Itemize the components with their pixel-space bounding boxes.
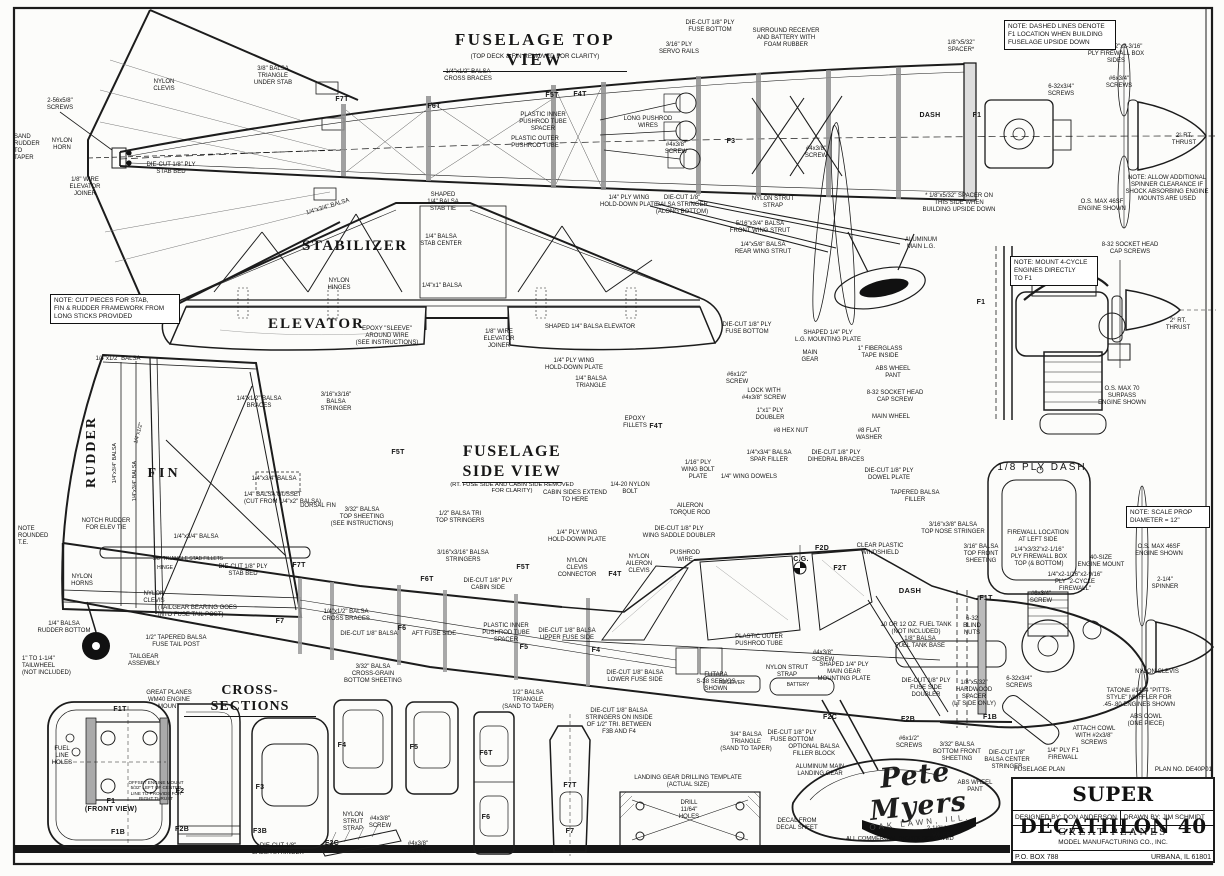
callout-label: #6x3/4" SCREWS <box>1098 76 1140 90</box>
callout-label: DIE-CUT 1/8" PLY FUSE BOTTOM <box>676 20 744 34</box>
callout-label: ALUMINUM MAIN LANDING GEAR <box>786 764 854 778</box>
callout-label: F5T <box>512 564 534 572</box>
callout-label: SURROUND RECEIVER AND BATTERY WITH FOAM … <box>744 28 828 49</box>
callout-label: F1B <box>106 829 130 837</box>
callout-label: F2C <box>320 840 344 848</box>
callout-label: 1/4"x3/4" BALSA <box>294 194 361 221</box>
callout-label: 1/4"x1/2" BALSA BRACES <box>224 396 294 410</box>
callout-label: F1 <box>968 112 986 120</box>
callout-label: OFFSET ENGINE MOUNT 5/32" LEFT OF CENTER… <box>118 780 194 802</box>
po-box-label: P.O. BOX 788 <box>1015 851 1058 864</box>
callout-label: PLASTIC INNER PUSHROD TUBE SPACER <box>514 112 572 133</box>
callout-label: NYLON CLEVIS <box>136 591 172 605</box>
callout-label: F1B <box>978 714 1002 722</box>
callout-label: 1/4"x3/32"x2-1/16" PLY FIREWALL BOX TOP … <box>998 547 1080 568</box>
callout-label: 5/16"x3/4" BALSA FRONT WING STRUT <box>722 221 798 235</box>
callout-label: F4 <box>586 647 606 655</box>
city-label: URBANA, IL 61801 <box>1151 851 1211 864</box>
callout-label: F2B <box>896 716 920 724</box>
callout-label: F2T <box>828 565 852 573</box>
title-block-credits: DESIGNED BY: DON ANDERSON DRAWN BY: JIM … <box>1012 810 1214 825</box>
callout-label: O.S. MAX 46SF ENGINE SHOWN <box>1070 199 1134 213</box>
callout-label: AILERON TORQUE ROD <box>662 503 718 517</box>
callout-label: SHAPED 1/4" PLY L.G. MOUNTING PLATE <box>784 330 872 344</box>
callout-label: #4x3/8" SCREW <box>398 841 438 855</box>
callout-label: 2° RT. THRUST <box>1160 318 1196 332</box>
callout-label: 1"x1" PLY DOUBLER <box>746 408 794 422</box>
callout-label: F4T <box>644 423 668 431</box>
callout-label: LONG PUSHROD WIRES <box>618 116 678 130</box>
callout-label: 1/4" BALSA TRIANGLE <box>566 376 616 390</box>
callout-label: F7 <box>270 618 290 626</box>
callout-label: 6-32 BLIND NUTS <box>956 616 988 637</box>
callout-label: TATONE #1434 "PITTS- STYLE" MUFFLER FOR … <box>1092 688 1186 709</box>
callout-label: 1/8"x5/32" SPACER* <box>936 40 986 54</box>
callout-label: DIE-CUT 1/8" BALSA LOWER FUSE SIDE <box>594 670 676 684</box>
callout-label: NOTE: CUT PIECES FOR STAB, FIN & RUDDER … <box>50 294 180 324</box>
callout-label: 1/4"x3/4" BALSA <box>240 476 308 483</box>
callout-label: F5T <box>386 449 410 457</box>
callout-label: F2C <box>818 714 842 722</box>
callout-label: 3/16"x3/16" BALSA STRINGER <box>308 392 364 413</box>
callout-label: 5/8" TRIANGLE STAB FILLETS <box>138 557 238 563</box>
callout-label: DIE-CUT 1/8" PLY STAB BED <box>208 564 278 578</box>
callout-label: FUEL LINE HOLES <box>44 746 80 767</box>
callout-label: 8-32 SOCKET HEAD CAP SCREWS <box>1092 242 1168 256</box>
callout-label: #8 HEX NUT <box>764 428 818 435</box>
callout-label: BATTERY <box>776 683 820 689</box>
callout-label: 1/4" PLY F1 FIREWALL <box>1036 748 1090 762</box>
callout-label: TAPERED BALSA FILLER <box>882 490 948 504</box>
callout-label: F5T <box>541 92 563 100</box>
callout-label: O.S. MAX 70 SURPASS ENGINE SHOWN <box>1092 386 1152 407</box>
callout-label: OPTIONAL BALSA FILLER BLOCK <box>780 744 848 758</box>
callout-label: F1T <box>974 595 998 603</box>
callout-label: DIE-CUT 1/8" BALSA <box>326 631 412 638</box>
callout-label: NYLON AILERON CLEVIS <box>618 554 660 575</box>
callout-label: NYLON HINGES <box>320 278 358 292</box>
callout-label: HINGE <box>150 566 180 572</box>
callout-label: 6-32x3/4" SCREWS <box>1038 84 1084 98</box>
callout-label: ABS WHEEL PANT <box>866 366 920 380</box>
callout-label: 1/4" PLY WING HOLD-DOWN PLATE <box>538 358 610 372</box>
callout-label: F4 <box>332 742 352 750</box>
callout-label: DIE-CUT 1/8" BALSA UPPER FUSE SIDE <box>526 628 608 642</box>
designed-by-label: DESIGNED BY: DON ANDERSON <box>1012 811 1120 825</box>
callout-label: DIE-CUT 1/8" PLY CABIN SIDE <box>452 578 524 592</box>
callout-label: F3 <box>250 784 270 792</box>
callout-label: 3/32" BALSA TOP SHEETING (SEE INSTRUCTIO… <box>328 507 396 528</box>
callout-label: 1/4"x3/4" BALSA SPAR FILLER <box>734 450 804 464</box>
callout-label: DIE-CUT 1/8" PLY STAB BED <box>138 162 204 176</box>
callout-label: 3/8" BALSA TRIANGLE UNDER STAB <box>246 66 300 87</box>
callout-label: 1/2" TAPERED BALSA FUSE TAIL POST <box>134 635 218 649</box>
callout-label: NYLON HORNS <box>64 574 100 588</box>
callout-label: 3/16"x3/8" BALSA TOP NOSE STRINGER <box>914 522 992 536</box>
callout-label: NYLON CLEVIS <box>146 79 182 93</box>
callout-label: NOTE: DASHED LINES DENOTE F1 LOCATION WH… <box>1004 20 1116 50</box>
callout-label: 1/8"x5/32" HARDWOOD SPACER (LT SIDE ONLY… <box>944 680 1004 708</box>
callout-label: LANDING GEAR DRILLING TEMPLATE (ACTUAL S… <box>618 775 758 789</box>
callout-label: 1/4" PLY WING HOLD-DOWN PLATE <box>540 530 614 544</box>
callout-label: MAIN WHEEL <box>862 414 920 421</box>
callout-label: F2B <box>170 826 194 834</box>
plan-sheet: FUSELAGE TOP VIEW (TOP DECK & FIN REMOVE… <box>0 0 1224 876</box>
callout-label: F7T <box>558 782 582 790</box>
callout-layer: 2-56x5/8" SCREWSSAND RUDDER TO TAPERNYLO… <box>0 0 1224 876</box>
callout-label: DIE-CUT 1/8" PLY FUSE BOTTOM <box>710 322 784 336</box>
callout-label: 8-32 SOCKET HEAD CAP SCREW <box>856 390 934 404</box>
callout-label: NYLON HORN <box>46 138 78 152</box>
callout-label: F5 <box>404 744 424 752</box>
callout-label: 1" TO 1-1/4" TAILWHEEL (NOT INCLUDED) <box>22 656 80 677</box>
callout-label: 1/8" BALSA FUEL TANK BASE <box>886 636 954 650</box>
callout-label: LOCK WITH #4x3/8" SCREW <box>732 388 796 402</box>
callout-label: DRILL 11/64" HOLES <box>668 800 710 821</box>
callout-label: NOTE ROUNDED T.E. <box>18 526 56 547</box>
callout-label: 1/4" BALSA RUDDER BOTTOM <box>30 621 98 635</box>
callout-label: NOTE: MOUNT 4-CYCLE ENGINES DIRECTLY TO … <box>1010 256 1098 286</box>
callout-label: DIE-CUT 1/8" BALSA STRINGERS ON INSIDE O… <box>576 708 662 736</box>
callout-label: F7T <box>331 96 353 104</box>
callout-label: F7 <box>560 828 580 836</box>
callout-label: #6x1/2" SCREWS <box>888 736 930 750</box>
callout-label: F1T <box>108 706 132 714</box>
callout-label: 1/8 PLY DASH <box>994 462 1090 474</box>
callout-label: #6x1/2" SCREW <box>716 372 758 386</box>
callout-label: RECEIVER <box>708 681 756 687</box>
callout-label: 1/4"x1/2" BALSA CROSS BRACES <box>436 69 500 83</box>
callout-label: 1/8" WIRE ELEVATOR JOINER <box>62 177 108 198</box>
callout-label: F6T <box>423 103 445 111</box>
callout-label: NOTCH RUDDER FOR ELEV TIE <box>76 518 136 532</box>
callout-label: F6T <box>416 576 438 584</box>
callout-label: DIE-CUT 1/8" BALSA STRINGER <box>244 843 312 857</box>
callout-label: ALUMINUM MAIN L.G. <box>896 237 946 251</box>
callout-label: DIE-CUT 1/8" BALSA STRINGER (ALONG BOTTO… <box>648 195 716 216</box>
title-block: SUPER DECATHLON 40 DESIGNED BY: DON ANDE… <box>1012 778 1214 862</box>
callout-label: F6 <box>476 814 496 822</box>
callout-label: DIE-CUT 1/8" PLY DOWEL PLATE <box>852 468 926 482</box>
callout-label: * 1/8"x5/32" SPACER ON THIS SIDE WHEN BU… <box>914 193 1004 214</box>
callout-label: 1/4"x3/4" BALSA <box>160 534 232 541</box>
callout-label: 10 OR 12 OZ. FUEL TANK (NOT INCLUDED) <box>866 622 966 636</box>
callout-label: CABIN SIDES EXTEND TO HERE <box>534 490 616 504</box>
callout-label: F6T <box>474 750 498 758</box>
title-block-address: P.O. BOX 788 URBANA, IL 61801 <box>1012 850 1214 864</box>
callout-label: SHAPED 1/4" BALSA ELEVATOR <box>528 324 652 331</box>
callout-label: #8 FLAT WASHER <box>848 428 890 442</box>
callout-label: TAILGEAR ASSEMBLY <box>120 654 168 668</box>
callout-label: NOTE: SCALE PROP DIAMETER = 12" <box>1126 506 1210 528</box>
callout-label: 2° RT. THRUST <box>1166 133 1202 147</box>
callout-label: PUSHROD WIRE <box>662 550 708 564</box>
callout-label: 40-SIZE ENGINE MOUNT <box>1070 555 1132 569</box>
callout-label: 1/4"x3/4" BALSA <box>112 424 118 502</box>
callout-label: 1/16" PLY WING BOLT PLATE <box>674 460 722 481</box>
callout-label: NYLON CLEVIS CONNECTOR <box>552 558 602 579</box>
callout-label: 3/16"x3/16" BALSA STRINGERS <box>424 550 502 564</box>
callout-label: ATTACH COWL WITH #2x3/8" SCREWS <box>1064 726 1124 747</box>
callout-label: PLASTIC OUTER PUSHROD TUBE <box>506 136 564 150</box>
callout-label: 1/4"x5/8" BALSA REAR WING STRUT <box>726 242 800 256</box>
callout-label: C.G. <box>788 556 814 564</box>
callout-label: 2-1/4" SPINNER <box>1142 577 1188 591</box>
callout-label: SHAPED 1/4" PLY MAIN GEAR MOUNTING PLATE <box>808 662 880 683</box>
callout-label: F5 <box>514 644 534 652</box>
callout-label: 3/32" BALSA CROSS-GRAIN BOTTOM SHEETING <box>336 664 410 685</box>
callout-label: #4x3/8" SCREW <box>656 142 696 156</box>
callout-label: DIE-CUT 1/8" PLY DIHEDRAL BRACES <box>798 450 874 464</box>
callout-label: #4x3/8" SCREW <box>360 816 400 830</box>
callout-label: 2-56x5/8" SCREWS <box>36 98 84 112</box>
callout-label: DECAL FROM DECAL SHEET <box>768 818 826 832</box>
callout-label: 1/2" BALSA TRIANGLE (SAND TO TAPER) <box>494 690 562 711</box>
callout-label: O.S. MAX 46SF ENGINE SHOWN <box>1126 544 1192 558</box>
callout-label: (TAILGEAR BEARING GOES INTO FUSE TAIL PO… <box>158 605 254 619</box>
callout-label: F2D <box>810 545 834 553</box>
callout-label: F7T <box>288 562 310 570</box>
callout-label: ABS COWL (ONE PIECE) <box>1118 714 1174 728</box>
callout-label: 1/4"x1/2" BALSA CROSS BRACES <box>312 609 380 623</box>
callout-label: #6x3/4" SCREW <box>1020 591 1062 605</box>
callout-label: GREAT PLANES WM40 ENGINE MOUNT <box>136 690 202 711</box>
callout-label: #4x3/8" SCREW <box>796 146 836 160</box>
callout-label: F3 <box>722 138 740 146</box>
callout-label: F3B <box>248 828 272 836</box>
callout-label: 1" FIBERGLASS TAPE INSIDE <box>848 346 912 360</box>
callout-label: 3/32" BALSA BOTTOM FRONT SHEETING <box>926 742 988 763</box>
callout-label: 1/4"x1/2" <box>130 410 148 456</box>
callout-label: ABS WHEEL PANT <box>948 780 1002 794</box>
callout-label: DIE-CUT 1/8" PLY WING SADDLE DOUBLER <box>634 526 724 540</box>
callout-label: AFT FUSE SIDE <box>402 631 466 638</box>
callout-label: PLASTIC OUTER PUSHROD TUBE <box>728 634 790 648</box>
callout-label: 1/2" BALSA TRI TOP STRINGERS <box>428 511 492 525</box>
callout-label: 2-1/2" MAIN WHEEL <box>914 826 972 840</box>
callout-label: FIREWALL LOCATION AT LEFT SIDE <box>998 530 1078 544</box>
callout-label: MAIN GEAR <box>794 350 826 364</box>
callout-label: SHAPED 1/4" BALSA STAB TIE <box>416 192 470 213</box>
callout-label: 3/16" BALSA TOP FRONT SHEETING <box>954 544 1008 565</box>
callout-label: DASH <box>892 587 928 596</box>
drawn-by-label: DRAWN BY: JIM SCHMIDT <box>1120 811 1214 825</box>
callout-label: F4T <box>569 91 591 99</box>
callout-label: EPOXY "SLEEVE" AROUND WIRE (SEE INSTRUCT… <box>350 326 424 347</box>
callout-label: 1/4" BALSA STAB CENTER <box>412 234 470 248</box>
callout-label: 3/4" BALSA TRIANGLE (SAND TO TAPER) <box>712 732 780 753</box>
callout-label: NYLON CLEVIS <box>1126 669 1188 676</box>
callout-label: NYLON STRUT STRAP <box>744 196 802 210</box>
callout-label: 3/16" PLY SERVO RAILS <box>652 42 706 56</box>
callout-label: CLEAR PLASTIC WINDSHIELD <box>848 543 912 557</box>
callout-label: F1 <box>972 299 990 307</box>
plan-title: SUPER DECATHLON 40 <box>1012 778 1214 810</box>
callout-label: DASH <box>914 112 946 120</box>
callout-label: SAND RUDDER TO TAPER <box>14 134 44 162</box>
callout-label: 1/8" WIRE ELEVATOR JOINER <box>476 329 522 350</box>
callout-label: 1/4"x1" BALSA <box>410 283 474 290</box>
callout-label: 1/4"x1/2" BALSA <box>84 356 152 363</box>
